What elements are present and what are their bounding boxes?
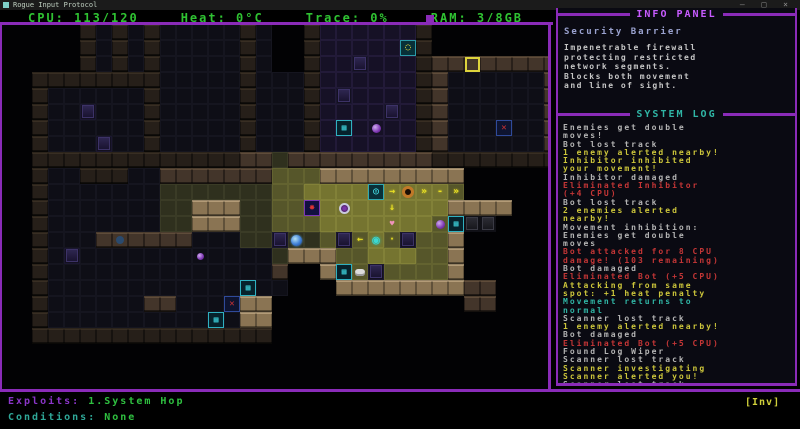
map-tile bbox=[336, 72, 352, 88]
map-tile bbox=[240, 72, 256, 88]
map-tile bbox=[48, 312, 64, 328]
map-tile bbox=[352, 152, 368, 168]
map-tile bbox=[224, 312, 240, 328]
map-tile bbox=[32, 232, 48, 248]
map-tile bbox=[144, 328, 160, 344]
map-tile bbox=[224, 248, 240, 264]
map-tile bbox=[144, 216, 160, 232]
map-tile bbox=[160, 296, 176, 312]
map-tile bbox=[256, 184, 272, 200]
map-tile bbox=[400, 136, 416, 152]
map-tile bbox=[80, 24, 96, 40]
map-tile bbox=[48, 120, 64, 136]
data-cache[interactable]: ▦ bbox=[336, 120, 352, 136]
patrol-bot[interactable] bbox=[400, 184, 416, 200]
map-tile bbox=[176, 248, 192, 264]
map-tile bbox=[400, 120, 416, 136]
beam-segment[interactable]: ↓ bbox=[384, 200, 400, 216]
map-tile bbox=[64, 232, 80, 248]
map-tile bbox=[80, 216, 96, 232]
map-tile bbox=[48, 168, 64, 184]
info-body-line: Blocks both movement bbox=[564, 72, 789, 82]
map-tile bbox=[144, 312, 160, 328]
map-tile bbox=[304, 120, 320, 136]
map-tile bbox=[128, 200, 144, 216]
map-tile bbox=[480, 296, 496, 312]
map-tile bbox=[112, 280, 128, 296]
game-window: Rogue Input Protocol – □ × CPU: 113/120H… bbox=[0, 0, 800, 429]
map-tile bbox=[176, 136, 192, 152]
map-tile bbox=[368, 280, 384, 296]
map-tile bbox=[416, 232, 432, 248]
map-tile bbox=[272, 168, 288, 184]
map-tile bbox=[272, 104, 288, 120]
beam-segment[interactable]: → bbox=[384, 184, 400, 200]
map-tile bbox=[256, 248, 272, 264]
map-tile bbox=[464, 200, 480, 216]
map-tile bbox=[480, 56, 496, 72]
info-body-line: network segments. bbox=[564, 62, 789, 72]
info-body-line: protecting restricted bbox=[564, 53, 789, 63]
map-tile bbox=[48, 152, 64, 168]
map-tile bbox=[304, 56, 320, 72]
map-tile bbox=[192, 232, 208, 248]
map-tile bbox=[96, 104, 112, 120]
map-tile bbox=[528, 104, 544, 120]
map-tile bbox=[32, 264, 48, 280]
map-tile bbox=[288, 200, 304, 216]
map-tile bbox=[112, 296, 128, 312]
map-tile bbox=[528, 88, 544, 104]
beam-segment[interactable]: · bbox=[384, 232, 400, 248]
map-tile bbox=[160, 200, 176, 216]
map-tile bbox=[192, 264, 208, 280]
map-tile bbox=[416, 152, 432, 168]
map-tile bbox=[272, 152, 288, 168]
map-tile bbox=[352, 248, 368, 264]
map-tile bbox=[80, 184, 96, 200]
map-tile bbox=[368, 88, 384, 104]
map-tile bbox=[144, 248, 160, 264]
alert-marker[interactable]: ✸ bbox=[304, 200, 320, 216]
map-tile bbox=[352, 168, 368, 184]
map-tile bbox=[256, 200, 272, 216]
map-tile bbox=[192, 88, 208, 104]
map-tile bbox=[80, 296, 96, 312]
map-tile bbox=[432, 152, 448, 168]
beam-segment[interactable]: ← bbox=[352, 232, 368, 248]
map-tile bbox=[288, 184, 304, 200]
map-tile bbox=[384, 88, 400, 104]
map-tile bbox=[384, 40, 400, 56]
map-tile bbox=[368, 40, 384, 56]
map-tile bbox=[96, 120, 112, 136]
map-tile bbox=[448, 232, 464, 248]
divider bbox=[558, 113, 630, 116]
map-tile bbox=[208, 328, 224, 344]
map-tile bbox=[416, 72, 432, 88]
map-tile bbox=[448, 152, 464, 168]
map-tile bbox=[256, 264, 272, 280]
map-tile bbox=[224, 72, 240, 88]
map-tile bbox=[64, 136, 80, 152]
divider bbox=[558, 13, 630, 16]
signal-orb[interactable] bbox=[432, 216, 448, 232]
map-tile bbox=[176, 88, 192, 104]
map-tile bbox=[368, 136, 384, 152]
map-tile bbox=[80, 168, 96, 184]
hazard-marker[interactable]: ✕ bbox=[224, 296, 240, 312]
target-cursor[interactable] bbox=[464, 56, 480, 72]
conditions-label: Conditions: bbox=[8, 412, 104, 423]
map-tile bbox=[112, 312, 128, 328]
map-tile bbox=[48, 296, 64, 312]
map-tile bbox=[336, 24, 352, 40]
map-tile bbox=[240, 248, 256, 264]
player-avatar[interactable]: ◉ bbox=[368, 232, 384, 248]
map-tile bbox=[352, 104, 368, 120]
map-tile bbox=[256, 312, 272, 328]
map-tile bbox=[208, 104, 224, 120]
map-tile bbox=[224, 24, 240, 40]
map-tile bbox=[112, 200, 128, 216]
map-tile bbox=[80, 280, 96, 296]
map-tile bbox=[304, 232, 320, 248]
map-tile bbox=[144, 136, 160, 152]
map-tile bbox=[384, 72, 400, 88]
map-tile bbox=[176, 184, 192, 200]
map-tile bbox=[160, 232, 176, 248]
map-tile bbox=[336, 232, 352, 248]
map-tile bbox=[208, 88, 224, 104]
map-tile bbox=[64, 312, 80, 328]
map-tile bbox=[464, 120, 480, 136]
map-tile bbox=[240, 312, 256, 328]
map-tile bbox=[320, 120, 336, 136]
map-tile bbox=[256, 24, 272, 40]
map-tile bbox=[400, 88, 416, 104]
map-tile bbox=[320, 200, 336, 216]
beam-segment[interactable]: » bbox=[416, 184, 432, 200]
beam-segment[interactable]: - bbox=[432, 184, 448, 200]
map-tile bbox=[128, 104, 144, 120]
map-tile bbox=[64, 152, 80, 168]
map-tile bbox=[400, 216, 416, 232]
map-tile bbox=[208, 168, 224, 184]
map-tile bbox=[80, 152, 96, 168]
map-tile bbox=[336, 168, 352, 184]
map-tile bbox=[384, 56, 400, 72]
map-tile bbox=[32, 328, 48, 344]
map-tile bbox=[240, 88, 256, 104]
info-heading: Security Barrier bbox=[564, 27, 789, 37]
map-tile bbox=[288, 152, 304, 168]
map-tile bbox=[112, 40, 128, 56]
map-tile bbox=[464, 216, 480, 232]
map-tile bbox=[320, 152, 336, 168]
map-tile bbox=[128, 168, 144, 184]
data-cache[interactable]: ▦ bbox=[448, 216, 464, 232]
map-tile bbox=[160, 328, 176, 344]
map-tile bbox=[448, 56, 464, 72]
map-tile bbox=[448, 72, 464, 88]
map-tile bbox=[320, 264, 336, 280]
map-tile bbox=[256, 280, 272, 296]
map-tile bbox=[208, 216, 224, 232]
map-tile bbox=[432, 136, 448, 152]
map-tile bbox=[224, 120, 240, 136]
map-tile bbox=[256, 40, 272, 56]
map-tile bbox=[384, 104, 400, 120]
map-tile bbox=[384, 24, 400, 40]
game-map[interactable]: ◌✕▦◎→»-»✸↓♥▦←◉·▦✕▦▦ bbox=[0, 24, 550, 390]
map-tile bbox=[176, 168, 192, 184]
map-tile bbox=[400, 168, 416, 184]
map-tile bbox=[80, 248, 96, 264]
map-tile bbox=[320, 232, 336, 248]
map-tile bbox=[128, 232, 144, 248]
map-tile bbox=[112, 216, 128, 232]
map-tile bbox=[192, 24, 208, 40]
watcher-bot[interactable] bbox=[336, 200, 352, 216]
map-tile bbox=[368, 104, 384, 120]
map-tile bbox=[224, 56, 240, 72]
map-tile bbox=[240, 264, 256, 280]
map-tile bbox=[64, 184, 80, 200]
map-tile bbox=[80, 264, 96, 280]
map-tile bbox=[32, 200, 48, 216]
map-tile bbox=[80, 104, 96, 120]
map-tile bbox=[112, 104, 128, 120]
map-tile bbox=[176, 152, 192, 168]
map-tile bbox=[352, 72, 368, 88]
window-title: Rogue Input Protocol bbox=[13, 1, 97, 9]
map-tile bbox=[400, 200, 416, 216]
map-tile bbox=[256, 168, 272, 184]
map-tile bbox=[528, 120, 544, 136]
map-tile bbox=[512, 120, 528, 136]
map-tile bbox=[352, 88, 368, 104]
map-tile bbox=[336, 152, 352, 168]
map-tile bbox=[256, 152, 272, 168]
map-tile bbox=[432, 232, 448, 248]
map-tile bbox=[256, 216, 272, 232]
map-tile bbox=[272, 136, 288, 152]
map-tile bbox=[288, 248, 304, 264]
map-tile bbox=[192, 72, 208, 88]
map-tile bbox=[208, 296, 224, 312]
map-tile bbox=[32, 152, 48, 168]
data-cache[interactable]: ▦ bbox=[208, 312, 224, 328]
map-tile bbox=[144, 296, 160, 312]
map-tile bbox=[384, 136, 400, 152]
map-tile bbox=[320, 104, 336, 120]
map-tile bbox=[128, 296, 144, 312]
map-tile bbox=[208, 24, 224, 40]
map-tile bbox=[192, 40, 208, 56]
beam-segment[interactable]: » bbox=[448, 184, 464, 200]
map-tile bbox=[144, 184, 160, 200]
map-tile bbox=[240, 120, 256, 136]
map-tile bbox=[96, 40, 112, 56]
map-tile bbox=[192, 280, 208, 296]
map-tile bbox=[464, 104, 480, 120]
map-tile bbox=[48, 104, 64, 120]
map-tile bbox=[416, 40, 432, 56]
status-area: Exploits: 1.System Hop Conditions: None bbox=[8, 394, 184, 426]
map-tile bbox=[176, 216, 192, 232]
scanner-bot[interactable]: ◎ bbox=[368, 184, 384, 200]
log-wiper-item[interactable] bbox=[352, 264, 368, 280]
map-tile bbox=[432, 72, 448, 88]
map-tile bbox=[416, 88, 432, 104]
map-tile bbox=[192, 328, 208, 344]
map-tile bbox=[160, 168, 176, 184]
map-tile bbox=[240, 104, 256, 120]
map-tile bbox=[496, 88, 512, 104]
map-tile bbox=[480, 152, 496, 168]
map-tile bbox=[224, 168, 240, 184]
map-tile bbox=[176, 296, 192, 312]
map-tile bbox=[432, 264, 448, 280]
map-tile bbox=[128, 328, 144, 344]
map-tile bbox=[144, 88, 160, 104]
info-body: Impenetrable firewallprotecting restrict… bbox=[564, 43, 789, 91]
map-tile bbox=[32, 248, 48, 264]
map-tile bbox=[224, 88, 240, 104]
map-tile bbox=[192, 152, 208, 168]
pink-item[interactable]: ♥ bbox=[384, 216, 400, 232]
map-tile bbox=[368, 56, 384, 72]
bot-tracked[interactable] bbox=[112, 232, 128, 248]
map-tile bbox=[64, 104, 80, 120]
hazard-marker[interactable]: ✕ bbox=[496, 120, 512, 136]
map-tile bbox=[448, 248, 464, 264]
map-tile bbox=[304, 72, 320, 88]
map-tile bbox=[96, 248, 112, 264]
map-tile bbox=[64, 168, 80, 184]
exploits-value[interactable]: 1.System Hop bbox=[88, 396, 184, 407]
map-tile bbox=[96, 56, 112, 72]
map-tile bbox=[256, 104, 272, 120]
map-tile bbox=[256, 88, 272, 104]
map-tile bbox=[128, 216, 144, 232]
map-tile bbox=[224, 328, 240, 344]
map-tile bbox=[304, 88, 320, 104]
map-tile bbox=[160, 136, 176, 152]
map-tile bbox=[464, 72, 480, 88]
map-tile bbox=[112, 136, 128, 152]
map-tile bbox=[128, 184, 144, 200]
map-tile bbox=[336, 136, 352, 152]
map-tile bbox=[272, 280, 288, 296]
map-tile bbox=[416, 56, 432, 72]
map-tile bbox=[240, 56, 256, 72]
map-tile bbox=[192, 184, 208, 200]
signal-orb[interactable] bbox=[368, 120, 384, 136]
map-tile bbox=[448, 264, 464, 280]
app-icon bbox=[3, 2, 9, 8]
map-tile bbox=[96, 232, 112, 248]
data-cache[interactable]: ▦ bbox=[240, 280, 256, 296]
system-log-list[interactable]: Enemies get doublemoves!Bot lost track1 … bbox=[558, 121, 795, 383]
map-tile bbox=[96, 296, 112, 312]
status-divider bbox=[0, 389, 800, 392]
map-tile bbox=[352, 184, 368, 200]
map-tile bbox=[176, 280, 192, 296]
map-tile bbox=[32, 72, 48, 88]
signal-orb[interactable] bbox=[192, 248, 208, 264]
map-tile bbox=[208, 136, 224, 152]
map-tile bbox=[208, 200, 224, 216]
info-panel-header: INFO PANEL bbox=[558, 8, 795, 21]
map-tile bbox=[112, 328, 128, 344]
map-tile bbox=[128, 312, 144, 328]
map-tile bbox=[48, 248, 64, 264]
inventory-button[interactable]: [Inv] bbox=[745, 397, 780, 408]
map-tile bbox=[176, 56, 192, 72]
map-tile bbox=[96, 152, 112, 168]
map-tile bbox=[224, 264, 240, 280]
map-tile bbox=[80, 136, 96, 152]
map-tile bbox=[112, 88, 128, 104]
map-tile bbox=[176, 264, 192, 280]
map-tile bbox=[384, 120, 400, 136]
map-tile bbox=[288, 104, 304, 120]
map-tile bbox=[144, 232, 160, 248]
map-tile bbox=[304, 248, 320, 264]
map-tile bbox=[80, 56, 96, 72]
map-tile bbox=[256, 56, 272, 72]
map-tile bbox=[176, 40, 192, 56]
map-tile bbox=[272, 72, 288, 88]
map-tile bbox=[512, 136, 528, 152]
map-tile bbox=[112, 24, 128, 40]
map-tile bbox=[432, 168, 448, 184]
bot-enemy[interactable] bbox=[288, 232, 304, 248]
terminal-node[interactable]: ◌ bbox=[400, 40, 416, 56]
map-tile bbox=[272, 120, 288, 136]
map-tile bbox=[464, 280, 480, 296]
map-tile bbox=[240, 296, 256, 312]
map-tile bbox=[192, 168, 208, 184]
map-tile bbox=[96, 72, 112, 88]
map-tile bbox=[384, 264, 400, 280]
map-tile bbox=[80, 328, 96, 344]
map-tile bbox=[416, 200, 432, 216]
map-tile bbox=[192, 104, 208, 120]
map-tile bbox=[144, 24, 160, 40]
log-line: Enemies get double bbox=[563, 232, 791, 240]
map-border-right bbox=[548, 22, 551, 390]
map-tile bbox=[64, 328, 80, 344]
map-tile bbox=[192, 200, 208, 216]
map-tile bbox=[384, 280, 400, 296]
map-tile bbox=[144, 40, 160, 56]
map-tile bbox=[96, 200, 112, 216]
map-tile bbox=[240, 328, 256, 344]
map-tile bbox=[304, 24, 320, 40]
map-tile bbox=[208, 184, 224, 200]
map-tile bbox=[480, 280, 496, 296]
map-tile bbox=[176, 104, 192, 120]
data-cache[interactable]: ▦ bbox=[336, 264, 352, 280]
map-tile bbox=[464, 152, 480, 168]
info-body-line: Impenetrable firewall bbox=[564, 43, 789, 53]
map-tile bbox=[208, 264, 224, 280]
map-tile bbox=[224, 280, 240, 296]
exploits-line: Exploits: 1.System Hop bbox=[8, 394, 184, 410]
